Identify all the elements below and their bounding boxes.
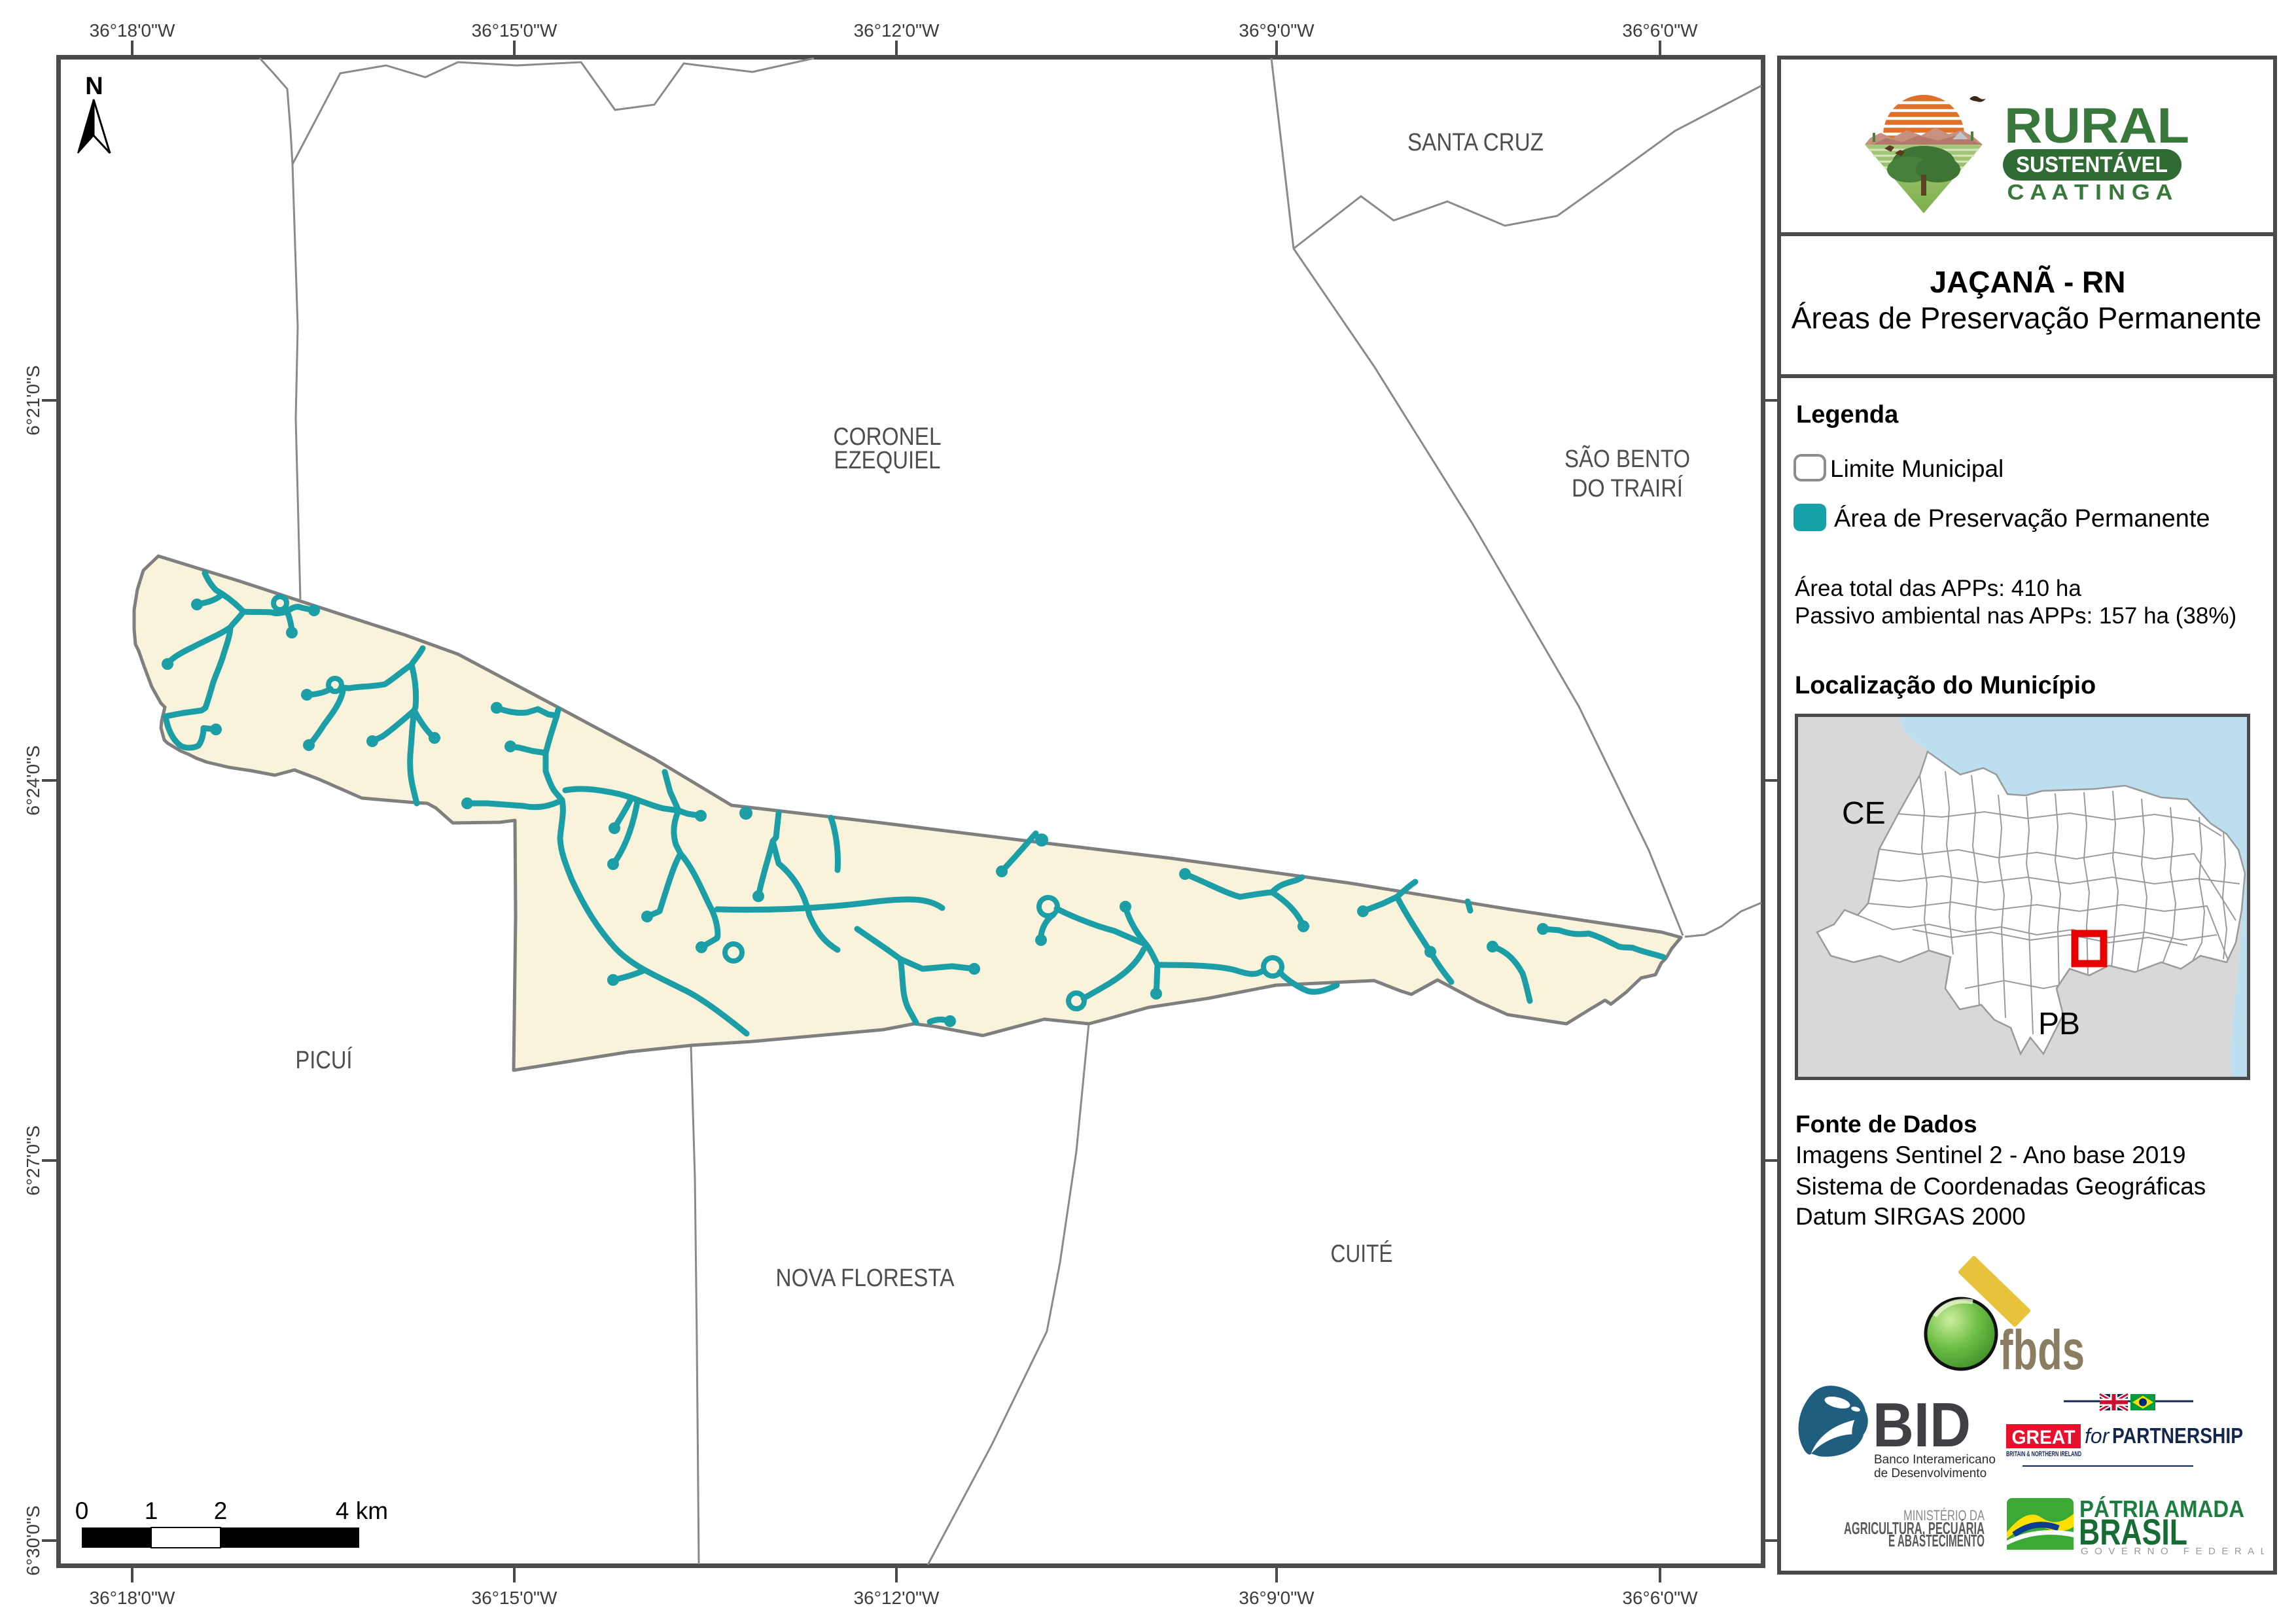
svg-text:36°6'0"W: 36°6'0"W <box>1622 1588 1698 1608</box>
svg-text:Passivo ambiental nas APPs: 15: Passivo ambiental nas APPs: 157 ha (38%) <box>1795 603 2236 629</box>
svg-text:6°30'0"S: 6°30'0"S <box>23 1505 43 1575</box>
svg-text:EZEQUIEL: EZEQUIEL <box>834 447 941 474</box>
svg-text:6°27'0"S: 6°27'0"S <box>23 1125 43 1195</box>
svg-text:36°9'0"W: 36°9'0"W <box>1239 20 1315 41</box>
svg-text:DO TRAIRÍ: DO TRAIRÍ <box>1572 474 1683 502</box>
svg-text:6°21'0"S: 6°21'0"S <box>23 365 43 435</box>
svg-text:de Desenvolvimento: de Desenvolvimento <box>1874 1467 1987 1480</box>
svg-text:Fonte de Dados: Fonte de Dados <box>1795 1111 1977 1138</box>
svg-text:Áreas de Preservação Permanent: Áreas de Preservação Permanente <box>1792 301 2262 335</box>
svg-text:PARTNERSHIP: PARTNERSHIP <box>2112 1423 2243 1448</box>
svg-text:4 km: 4 km <box>336 1497 388 1524</box>
svg-text:GREAT: GREAT <box>2012 1427 2075 1448</box>
svg-text:Datum SIRGAS 2000: Datum SIRGAS 2000 <box>1795 1203 2026 1230</box>
svg-text:PICUÍ: PICUÍ <box>296 1046 353 1074</box>
svg-text:for: for <box>2085 1424 2110 1448</box>
svg-text:Imagens Sentinel 2 - Ano base: Imagens Sentinel 2 - Ano base 2019 <box>1795 1142 2186 1168</box>
svg-text:fbds: fbds <box>2000 1319 2085 1374</box>
svg-text:36°6'0"W: 36°6'0"W <box>1622 20 1698 41</box>
svg-text:CUITÉ: CUITÉ <box>1331 1240 1393 1268</box>
svg-text:SANTA CRUZ: SANTA CRUZ <box>1407 129 1544 156</box>
svg-text:RURAL: RURAL <box>2004 98 2189 154</box>
svg-text:C A A T I N G A: C A A T I N G A <box>2007 180 2173 204</box>
svg-text:6°24'0"S: 6°24'0"S <box>23 745 43 815</box>
svg-text:NOVA FLORESTA: NOVA FLORESTA <box>776 1265 955 1292</box>
svg-text:BRITAIN & NORTHERN IRELAND: BRITAIN & NORTHERN IRELAND <box>2006 1450 2081 1458</box>
svg-text:SÃO BENTO: SÃO BENTO <box>1564 445 1690 473</box>
svg-text:Sistema de Coordenadas Geográf: Sistema de Coordenadas Geográficas <box>1795 1173 2206 1200</box>
svg-text:36°15'0"W: 36°15'0"W <box>472 20 557 41</box>
svg-text:36°15'0"W: 36°15'0"W <box>472 1588 557 1608</box>
svg-text:2: 2 <box>214 1497 228 1524</box>
svg-text:E ABASTECIMENTO: E ABASTECIMENTO <box>1888 1531 1985 1550</box>
svg-text:36°18'0"W: 36°18'0"W <box>90 1588 175 1608</box>
svg-text:GOVERNO FEDERAL: GOVERNO FEDERAL <box>2081 1546 2264 1557</box>
svg-text:Limite Municipal: Limite Municipal <box>1830 455 2004 482</box>
svg-text:BID: BID <box>1873 1390 1971 1460</box>
svg-text:0: 0 <box>75 1497 89 1524</box>
svg-text:36°12'0"W: 36°12'0"W <box>854 1588 940 1608</box>
svg-text:JAÇANÃ - RN: JAÇANÃ - RN <box>1930 265 2126 299</box>
svg-text:Área total das APPs: 410 ha: Área total das APPs: 410 ha <box>1795 576 2081 601</box>
svg-text:36°12'0"W: 36°12'0"W <box>854 20 940 41</box>
svg-text:SUSTENTÁVEL: SUSTENTÁVEL <box>2016 152 2168 177</box>
svg-text:36°9'0"W: 36°9'0"W <box>1239 1588 1315 1608</box>
svg-text:36°18'0"W: 36°18'0"W <box>90 20 175 41</box>
svg-text:Localização do Município: Localização do Município <box>1795 672 2096 699</box>
svg-text:CE: CE <box>1842 796 1886 831</box>
svg-text:Banco Interamericano: Banco Interamericano <box>1874 1453 1996 1467</box>
svg-text:Área de Preservação Permanente: Área de Preservação Permanente <box>1834 504 2210 532</box>
svg-text:1: 1 <box>145 1497 158 1524</box>
svg-text:N: N <box>85 73 103 100</box>
svg-text:PB: PB <box>2038 1007 2080 1041</box>
svg-text:Legenda: Legenda <box>1796 401 1899 428</box>
